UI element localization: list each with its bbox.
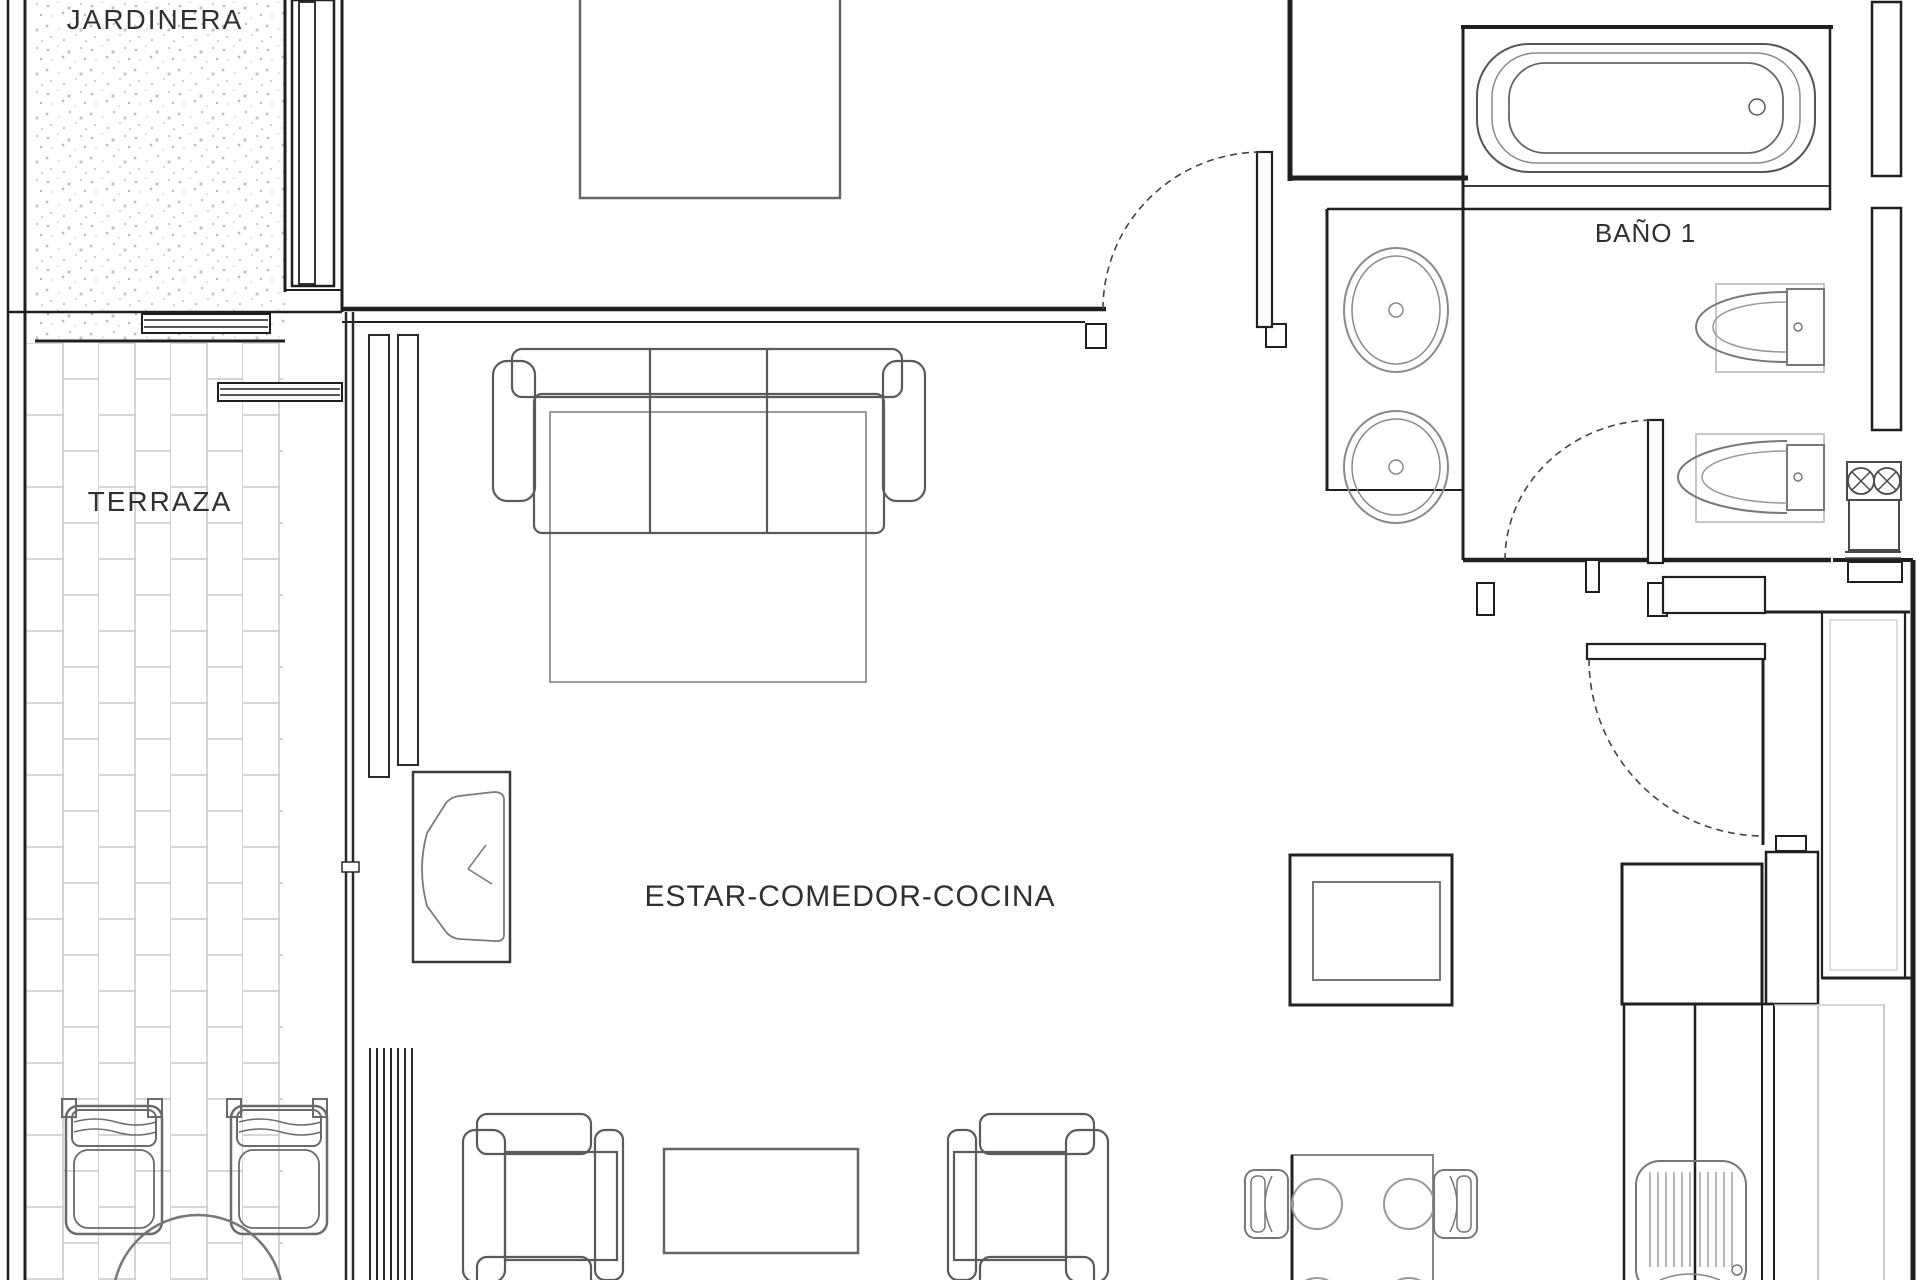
bathtub — [1477, 44, 1815, 172]
toilet — [1696, 284, 1824, 372]
kitchen-counter — [1622, 852, 1884, 1280]
armchair-left-facing — [948, 1114, 1108, 1280]
kitchen-island — [1290, 855, 1452, 1005]
double-sink-vanity — [1344, 248, 1448, 523]
tv-unit — [413, 772, 510, 962]
kitchen-sink-drainboard — [1636, 1161, 1746, 1280]
coffee-table — [664, 1149, 858, 1253]
laundry-column — [1845, 462, 1901, 558]
bathroom-door-swing — [1505, 420, 1663, 563]
tall-closet — [1822, 612, 1905, 978]
room-label-terraza: TERRAZA — [55, 486, 265, 518]
dining-chair-left — [1245, 1170, 1288, 1238]
floor-plan: JARDINERA TERRAZA BAÑO 1 ESTAR-COMEDOR-C… — [0, 0, 1920, 1280]
dining-table-with-plates — [1292, 1155, 1434, 1280]
room-label-jardinera: JARDINERA — [50, 4, 260, 36]
walls — [8, 0, 1913, 1280]
bidet — [1678, 434, 1824, 522]
sofa-bed — [493, 349, 925, 682]
armchair-right-facing — [463, 1114, 623, 1280]
threshold-terraza — [218, 383, 342, 401]
bedroom-door-swing — [1103, 152, 1272, 327]
room-label-estar-comedor-cocina: ESTAR-COMEDOR-COCINA — [560, 880, 1140, 914]
bedroom-rug — [580, 0, 840, 198]
dining-chair-right — [1434, 1170, 1477, 1238]
entry-door-swing — [1587, 644, 1765, 836]
threshold-jardinera — [142, 314, 270, 333]
room-label-bano-1: BAÑO 1 — [1543, 218, 1748, 249]
floor-plan-drawing — [0, 0, 1920, 1280]
sliding-glass-door — [342, 312, 418, 1280]
planter-stipple-bed — [35, 0, 285, 341]
